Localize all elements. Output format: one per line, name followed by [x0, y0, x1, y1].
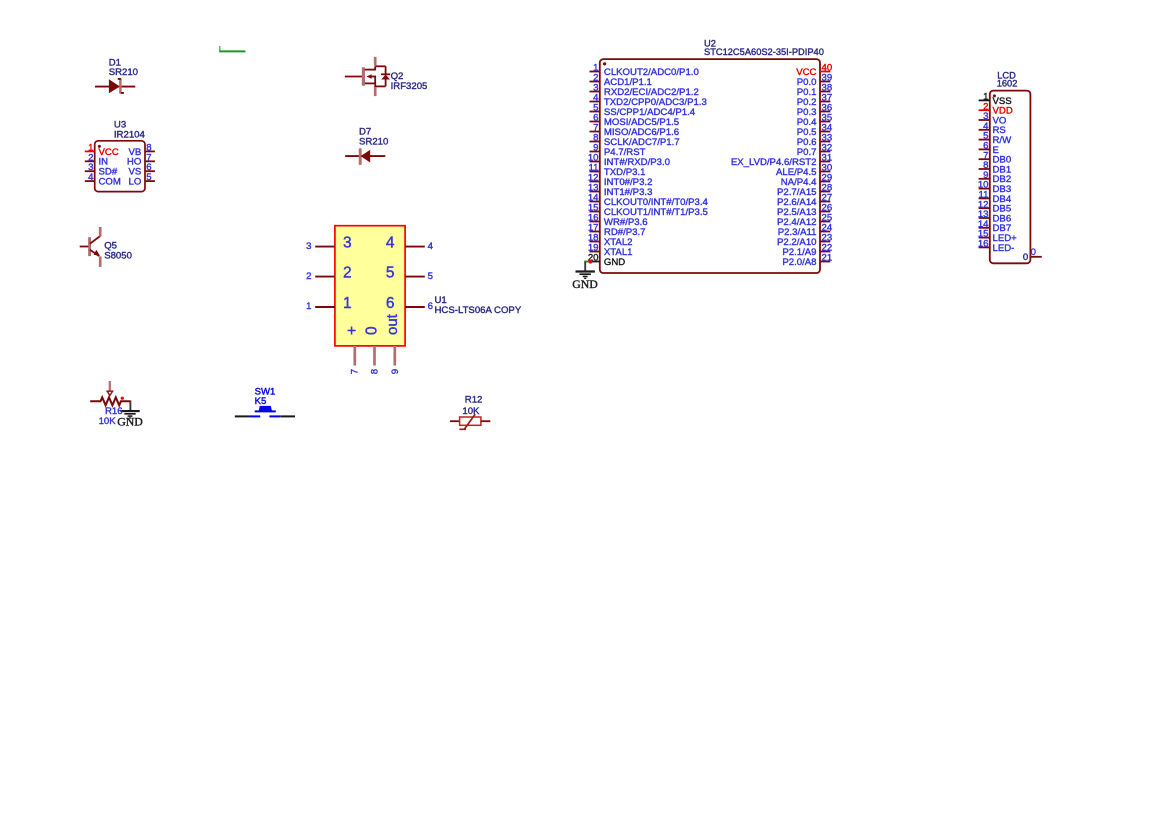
- svg-text:4: 4: [386, 235, 395, 252]
- svg-text:4: 4: [428, 241, 434, 252]
- svg-text:+: +: [344, 326, 361, 335]
- svg-text:P2.0/A8: P2.0/A8: [782, 257, 816, 268]
- svg-text:2: 2: [306, 271, 311, 282]
- svg-text:7: 7: [350, 369, 361, 374]
- svg-text:2: 2: [343, 265, 352, 282]
- svg-text:0: 0: [1031, 247, 1036, 258]
- svg-text:1: 1: [343, 295, 352, 312]
- svg-text:0: 0: [364, 326, 381, 335]
- svg-text:1: 1: [306, 301, 311, 312]
- svg-text:6: 6: [428, 301, 433, 312]
- svg-text:10K: 10K: [99, 416, 117, 427]
- svg-text:SR210: SR210: [359, 137, 388, 148]
- svg-text:COM: COM: [99, 177, 121, 188]
- svg-text:0: 0: [1023, 252, 1028, 263]
- svg-text:out: out: [384, 313, 401, 335]
- svg-text:21: 21: [822, 253, 833, 264]
- svg-text:R12: R12: [465, 394, 483, 405]
- svg-text:S8050: S8050: [104, 251, 132, 262]
- svg-text:STC12C5A60S2-35I-PDIP40: STC12C5A60S2-35I-PDIP40: [704, 47, 824, 57]
- svg-text:IRF3205: IRF3205: [391, 81, 428, 92]
- svg-text:GND: GND: [572, 277, 598, 291]
- svg-text:HCS-LTS06A COPY: HCS-LTS06A COPY: [435, 305, 522, 316]
- svg-text:3: 3: [343, 235, 352, 252]
- svg-text:IR2104: IR2104: [114, 129, 146, 140]
- svg-text:SR210: SR210: [109, 67, 138, 78]
- svg-text:5: 5: [428, 271, 433, 282]
- svg-text:4: 4: [88, 172, 94, 183]
- svg-text:LED-: LED-: [993, 243, 1015, 254]
- svg-text:16: 16: [978, 239, 989, 250]
- svg-text:8: 8: [369, 369, 380, 374]
- svg-text:5: 5: [146, 172, 151, 183]
- svg-text:3: 3: [306, 241, 311, 252]
- svg-text:10K: 10K: [462, 406, 480, 417]
- svg-text:5: 5: [386, 265, 395, 282]
- svg-text:GND: GND: [604, 257, 625, 268]
- svg-text:K5: K5: [255, 396, 267, 407]
- svg-text:1602: 1602: [997, 79, 1018, 89]
- svg-text:6: 6: [386, 295, 395, 312]
- svg-text:9: 9: [390, 369, 401, 374]
- svg-text:LO: LO: [128, 177, 141, 188]
